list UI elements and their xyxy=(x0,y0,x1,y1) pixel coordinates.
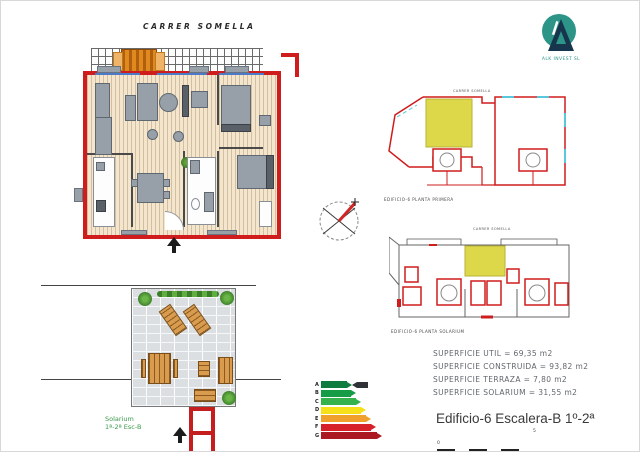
kitchen-stove xyxy=(96,200,106,212)
bathroom xyxy=(187,157,216,225)
chair-round-2 xyxy=(173,131,184,142)
solarium-label-line2: 1ª-2ª Esc-B xyxy=(105,423,141,431)
energy-row-a: A xyxy=(315,381,425,388)
plan-bottom-sill-right xyxy=(207,230,237,235)
tree-top-left xyxy=(138,292,152,306)
solarium-label-line1: Solarium xyxy=(105,415,141,423)
window-top-right xyxy=(219,73,264,75)
dining-chair-1 xyxy=(131,179,138,187)
bed-main xyxy=(221,85,251,131)
bed-second xyxy=(237,155,273,189)
dining-table xyxy=(137,173,164,203)
kitchen-sink xyxy=(96,162,105,171)
surface-areas: SUPERFICIE UTIL = 69,35 m2 SUPERFICIE CO… xyxy=(433,347,588,399)
armchair xyxy=(125,95,136,121)
window-sill-right xyxy=(225,66,249,73)
dining-chair-2 xyxy=(163,179,170,187)
surface-construida: SUPERFICIE CONSTRUIDA = 93,82 m2 xyxy=(433,360,588,373)
surface-util: SUPERFICIE UTIL = 69,35 m2 xyxy=(433,347,588,360)
compass-icon xyxy=(315,193,367,247)
kitchen-counter xyxy=(93,157,115,227)
energy-rating-indicator-icon xyxy=(352,382,368,388)
energy-label: A B C D E F G xyxy=(315,381,425,449)
entry-door-arc xyxy=(165,211,184,230)
scale-bar: 0 5 xyxy=(437,429,547,452)
bench-bottom xyxy=(194,389,216,402)
company-logo: ALK INVEST SL xyxy=(534,11,588,63)
window-sill-center xyxy=(189,66,209,73)
toilet xyxy=(191,198,200,210)
energy-row-b: B xyxy=(315,390,425,397)
awning-flap-right xyxy=(155,52,165,71)
site-plan-lower-street-label: CARRER SOMELLA xyxy=(473,227,511,231)
cabinet xyxy=(95,117,112,155)
solarium-boundary-left xyxy=(41,379,131,380)
stairs xyxy=(189,407,215,452)
scale-end-label: 5 xyxy=(533,429,536,434)
sheet-title: Edificio-6 Escalera-B 1º-2ª xyxy=(436,411,595,426)
scale-start-label: 0 xyxy=(437,441,440,446)
side-table xyxy=(198,361,210,377)
company-name-label: ALK INVEST SL xyxy=(534,57,588,62)
bathtub xyxy=(259,201,272,227)
energy-row-d: D xyxy=(315,407,425,414)
dining-chair-3 xyxy=(163,191,170,199)
tree-bottom-right xyxy=(222,391,236,405)
solarium-label: Solarium 1ª-2ª Esc-B xyxy=(105,415,141,431)
chair-round-1 xyxy=(147,129,158,140)
washbasin-cabinet xyxy=(204,192,214,212)
entrance-arrow-icon xyxy=(167,237,181,253)
wall-kitchen-v xyxy=(131,153,133,227)
energy-row-c: C xyxy=(315,398,425,405)
wall-stub-right xyxy=(295,53,299,77)
wall-bath-right xyxy=(217,151,219,227)
sideboard xyxy=(191,91,208,108)
wall-bedroom-top xyxy=(217,75,219,125)
sun-lounger-1 xyxy=(159,304,188,337)
site-plan-lower-caption: EDIFICIO-6 PLANTA SOLARIUM xyxy=(391,329,464,334)
surface-terraza: SUPERFICIE TERRAZA = 7,80 m2 xyxy=(433,373,588,386)
surface-solarium: SUPERFICIE SOLARIUM = 31,55 m2 xyxy=(433,386,588,399)
energy-row-g: G xyxy=(315,432,425,439)
solarium-arrow-icon xyxy=(173,427,187,443)
tv-unit xyxy=(182,85,189,117)
sofa xyxy=(137,83,158,121)
bed-main-headboard xyxy=(221,124,251,132)
shower xyxy=(190,160,200,174)
picnic-bench-left xyxy=(141,359,146,378)
window-top-center xyxy=(157,73,207,75)
window-sill-left xyxy=(97,66,121,73)
bench-right xyxy=(218,357,233,384)
plan-bottom-sill-left xyxy=(121,230,147,235)
sun-lounger-2 xyxy=(183,304,212,337)
plan-sheet: CARRER SOMELLA ALK INVEST SL xyxy=(0,0,640,452)
company-logo-icon xyxy=(534,11,588,55)
solarium-terrace xyxy=(131,288,236,407)
wall-bedroom-bottom xyxy=(219,147,263,149)
window-sill-side xyxy=(74,188,83,202)
wardrobe xyxy=(95,83,110,119)
main-floor-plan xyxy=(83,71,281,239)
picnic-table xyxy=(148,353,171,384)
window-top-left xyxy=(95,73,140,75)
desk xyxy=(259,115,271,126)
street-name-label: CARRER SOMELLA xyxy=(143,22,256,31)
site-plan-upper-caption: EDIFICIO-6 PLANTA PRIMERA xyxy=(384,197,454,202)
picnic-bench-right xyxy=(173,359,178,378)
coffee-table xyxy=(159,93,178,112)
bed-second-headboard xyxy=(266,155,274,189)
energy-row-e: E xyxy=(315,415,425,422)
site-plan-upper xyxy=(387,93,577,195)
tree-top-right xyxy=(220,291,234,305)
solarium-boundary-top xyxy=(41,285,256,286)
hedge xyxy=(157,291,219,297)
energy-row-f: F xyxy=(315,424,425,431)
site-plan-lower xyxy=(389,233,577,325)
